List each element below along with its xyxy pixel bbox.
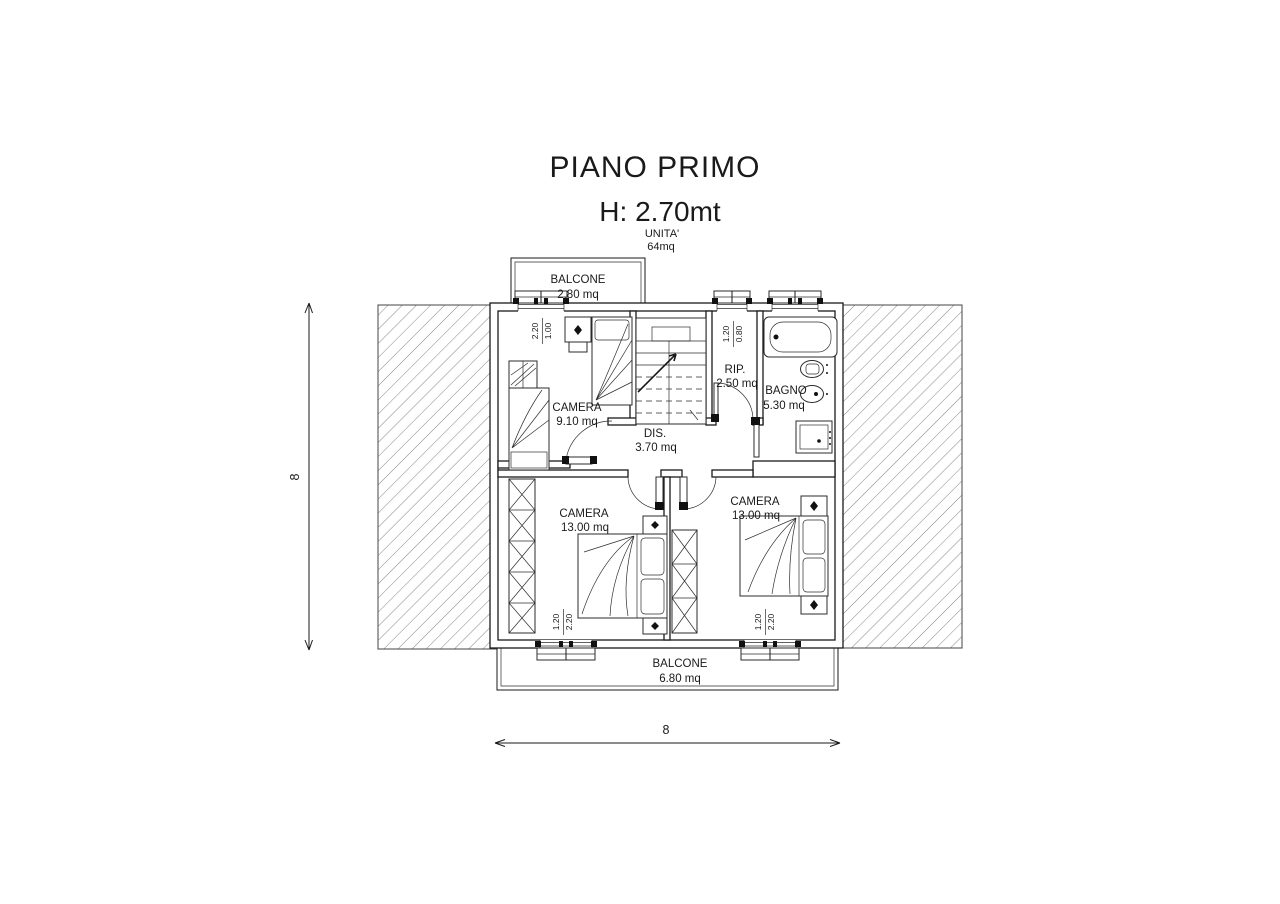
- unit-area: 64mq: [647, 241, 675, 253]
- dimension-bottom: 8: [495, 723, 840, 747]
- shower-icon: [796, 421, 832, 453]
- balcone-top-label: BALCONE: [551, 274, 606, 286]
- staircase: [636, 318, 706, 424]
- camera-sud-est-area: 13.00 mq: [732, 510, 780, 522]
- nightstand-icon: [565, 317, 591, 352]
- bagno-label: BAGNO: [765, 385, 807, 397]
- rip-label: RIP.: [725, 364, 746, 376]
- nightstand-icon: [801, 596, 827, 614]
- window-rip-height: 1.20: [721, 325, 731, 342]
- bathtub-icon: [764, 317, 837, 357]
- camera-sud-ovest-label: CAMERA: [559, 508, 609, 520]
- single-bed-icon: [592, 317, 632, 405]
- single-bed-icon: [509, 388, 549, 470]
- floor-plan-drawing: 8 8: [0, 0, 1280, 904]
- balcone-bottom-label: BALCONE: [653, 658, 708, 670]
- window-camera-sud-ovest-width: 1.20: [551, 613, 561, 630]
- window-camera-sud-est-width: 1.20: [753, 613, 763, 630]
- dimension-bottom-value: 8: [663, 723, 670, 737]
- window-camera-nord-width: 1.00: [543, 322, 553, 339]
- camera-nord-area: 9.10 mq: [556, 416, 598, 428]
- dis-area: 3.70 mq: [635, 442, 677, 454]
- dimension-left: 8: [288, 303, 313, 650]
- roof-hatch-right: [841, 305, 962, 648]
- dimension-left-value: 8: [288, 473, 302, 480]
- floor-height-label: H: 2.70mt: [599, 196, 721, 227]
- window-camera-sud-ovest-height: 2.20: [564, 613, 574, 630]
- camera-nord-label: CAMERA: [552, 402, 602, 414]
- nightstand-icon: [643, 618, 667, 634]
- roof-hatch-left: [378, 305, 497, 649]
- camera-sud-est-label: CAMERA: [730, 496, 780, 508]
- floor-plan-page: 8 8: [0, 0, 1280, 904]
- plan-header: PIANO PRIMO H: 2.70mt UNITA' 64mq: [549, 151, 760, 253]
- wardrobe-icon: [509, 479, 535, 633]
- window-camera-sud-est-height: 2.20: [766, 613, 776, 630]
- wardrobe-icon: [672, 530, 697, 633]
- double-bed-icon: [740, 516, 828, 596]
- double-bed-icon: [578, 534, 667, 618]
- nightstand-icon: [801, 496, 827, 516]
- dresser-icon: [509, 361, 537, 388]
- window-camera-nord-height: 2.20: [530, 322, 540, 339]
- camera-sud-ovest-area: 13.00 mq: [561, 522, 609, 534]
- balcone-bottom-area: 6.80 mq: [659, 673, 701, 685]
- page-title: PIANO PRIMO: [549, 151, 760, 184]
- dis-label: DIS.: [644, 428, 666, 440]
- balcone-top-area: 2.80 mq: [557, 289, 599, 301]
- unit-label: UNITA': [645, 228, 679, 240]
- rip-area: 2.50 mq: [716, 378, 758, 390]
- bagno-area: 5.30 mq: [763, 400, 805, 412]
- nightstand-icon: [643, 516, 667, 534]
- window-rip-width: 0.80: [734, 325, 744, 342]
